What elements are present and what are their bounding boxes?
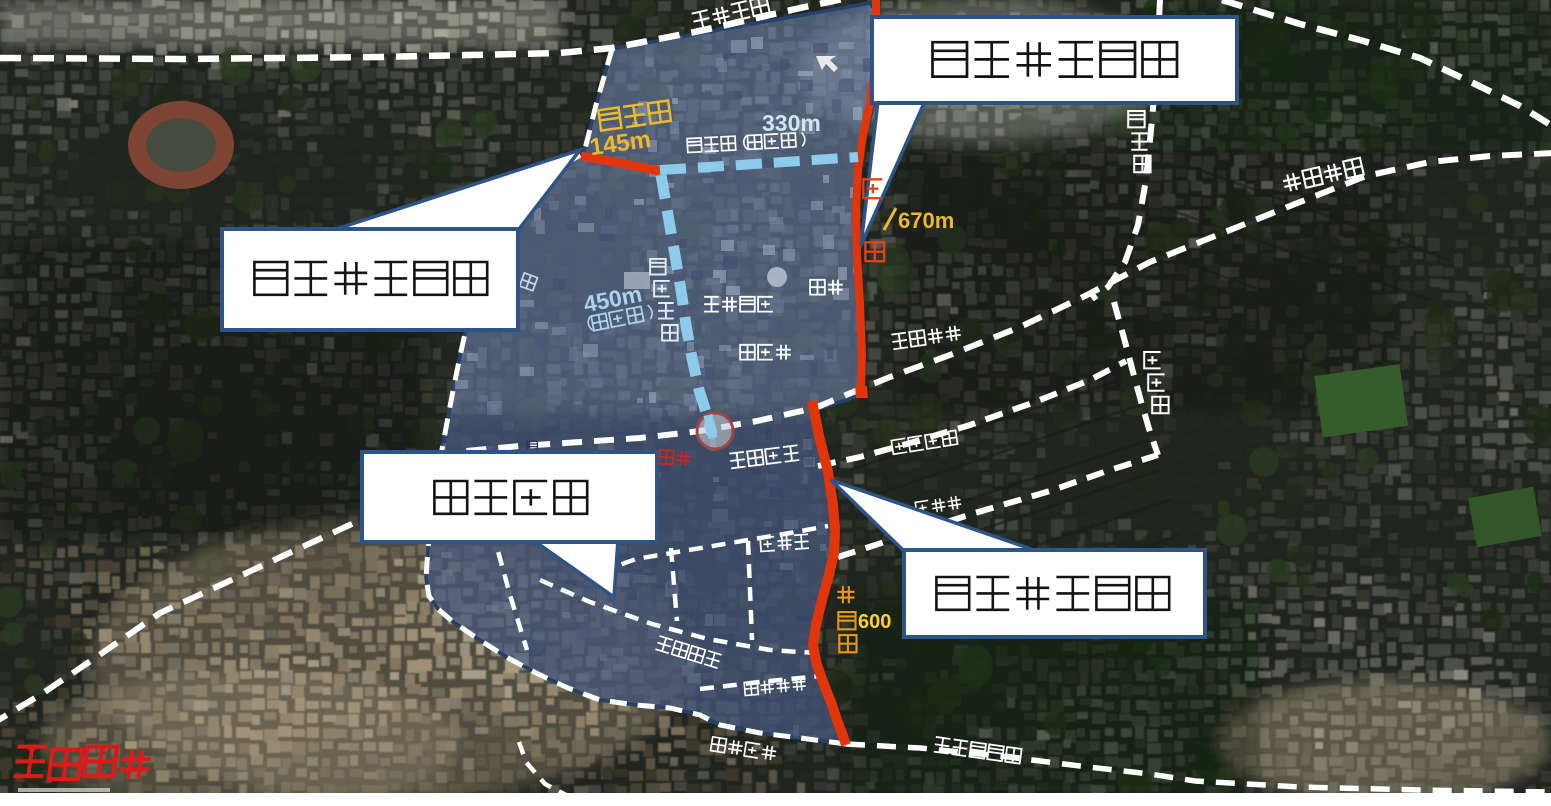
svg-text:670m: 670m — [898, 208, 954, 233]
svg-text:330m: 330m — [762, 110, 821, 136]
svg-text:600: 600 — [858, 611, 891, 633]
